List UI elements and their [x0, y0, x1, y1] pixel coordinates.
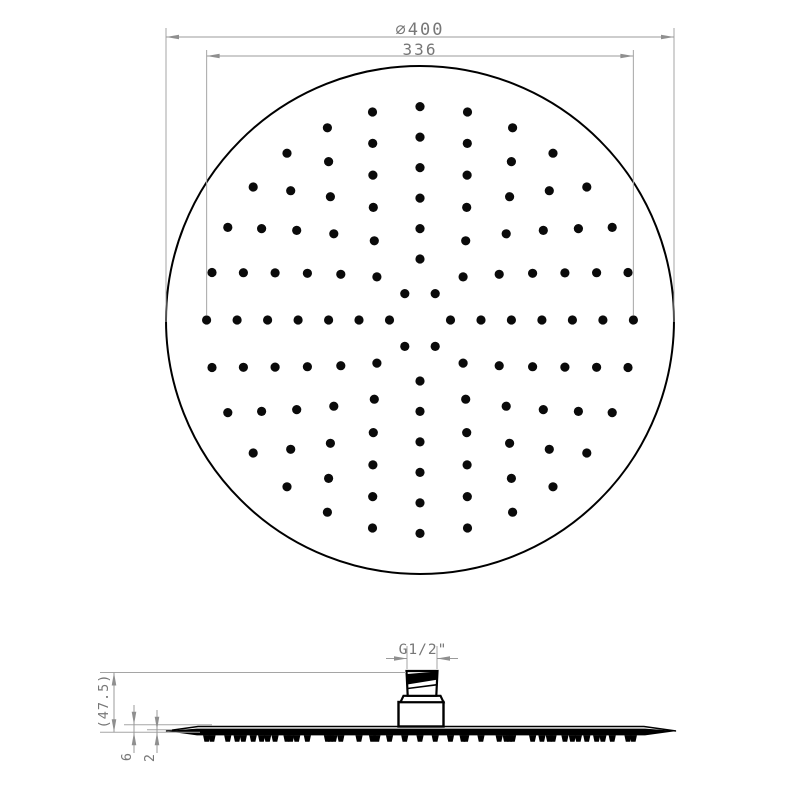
technical-drawing: ∅400 336 G1/2" (47.5) 6 2	[0, 0, 800, 800]
top-view	[166, 66, 674, 574]
nozzle-teeth	[203, 735, 637, 742]
connector	[399, 671, 444, 727]
side-view	[165, 727, 677, 736]
dim-label-thread: G1/2"	[399, 642, 448, 658]
drawing-svg	[0, 0, 800, 800]
dim-label-diameter: ∅400	[396, 20, 445, 40]
dimension-height-475	[100, 673, 406, 733]
dim-label-plate-thickness: 6	[119, 753, 135, 761]
dim-label-height: (47.5)	[96, 674, 112, 729]
dim-label-nozzle-span: 336	[403, 40, 438, 59]
dimension-edge-2	[147, 710, 172, 753]
dim-label-edge-thickness: 2	[142, 754, 158, 762]
